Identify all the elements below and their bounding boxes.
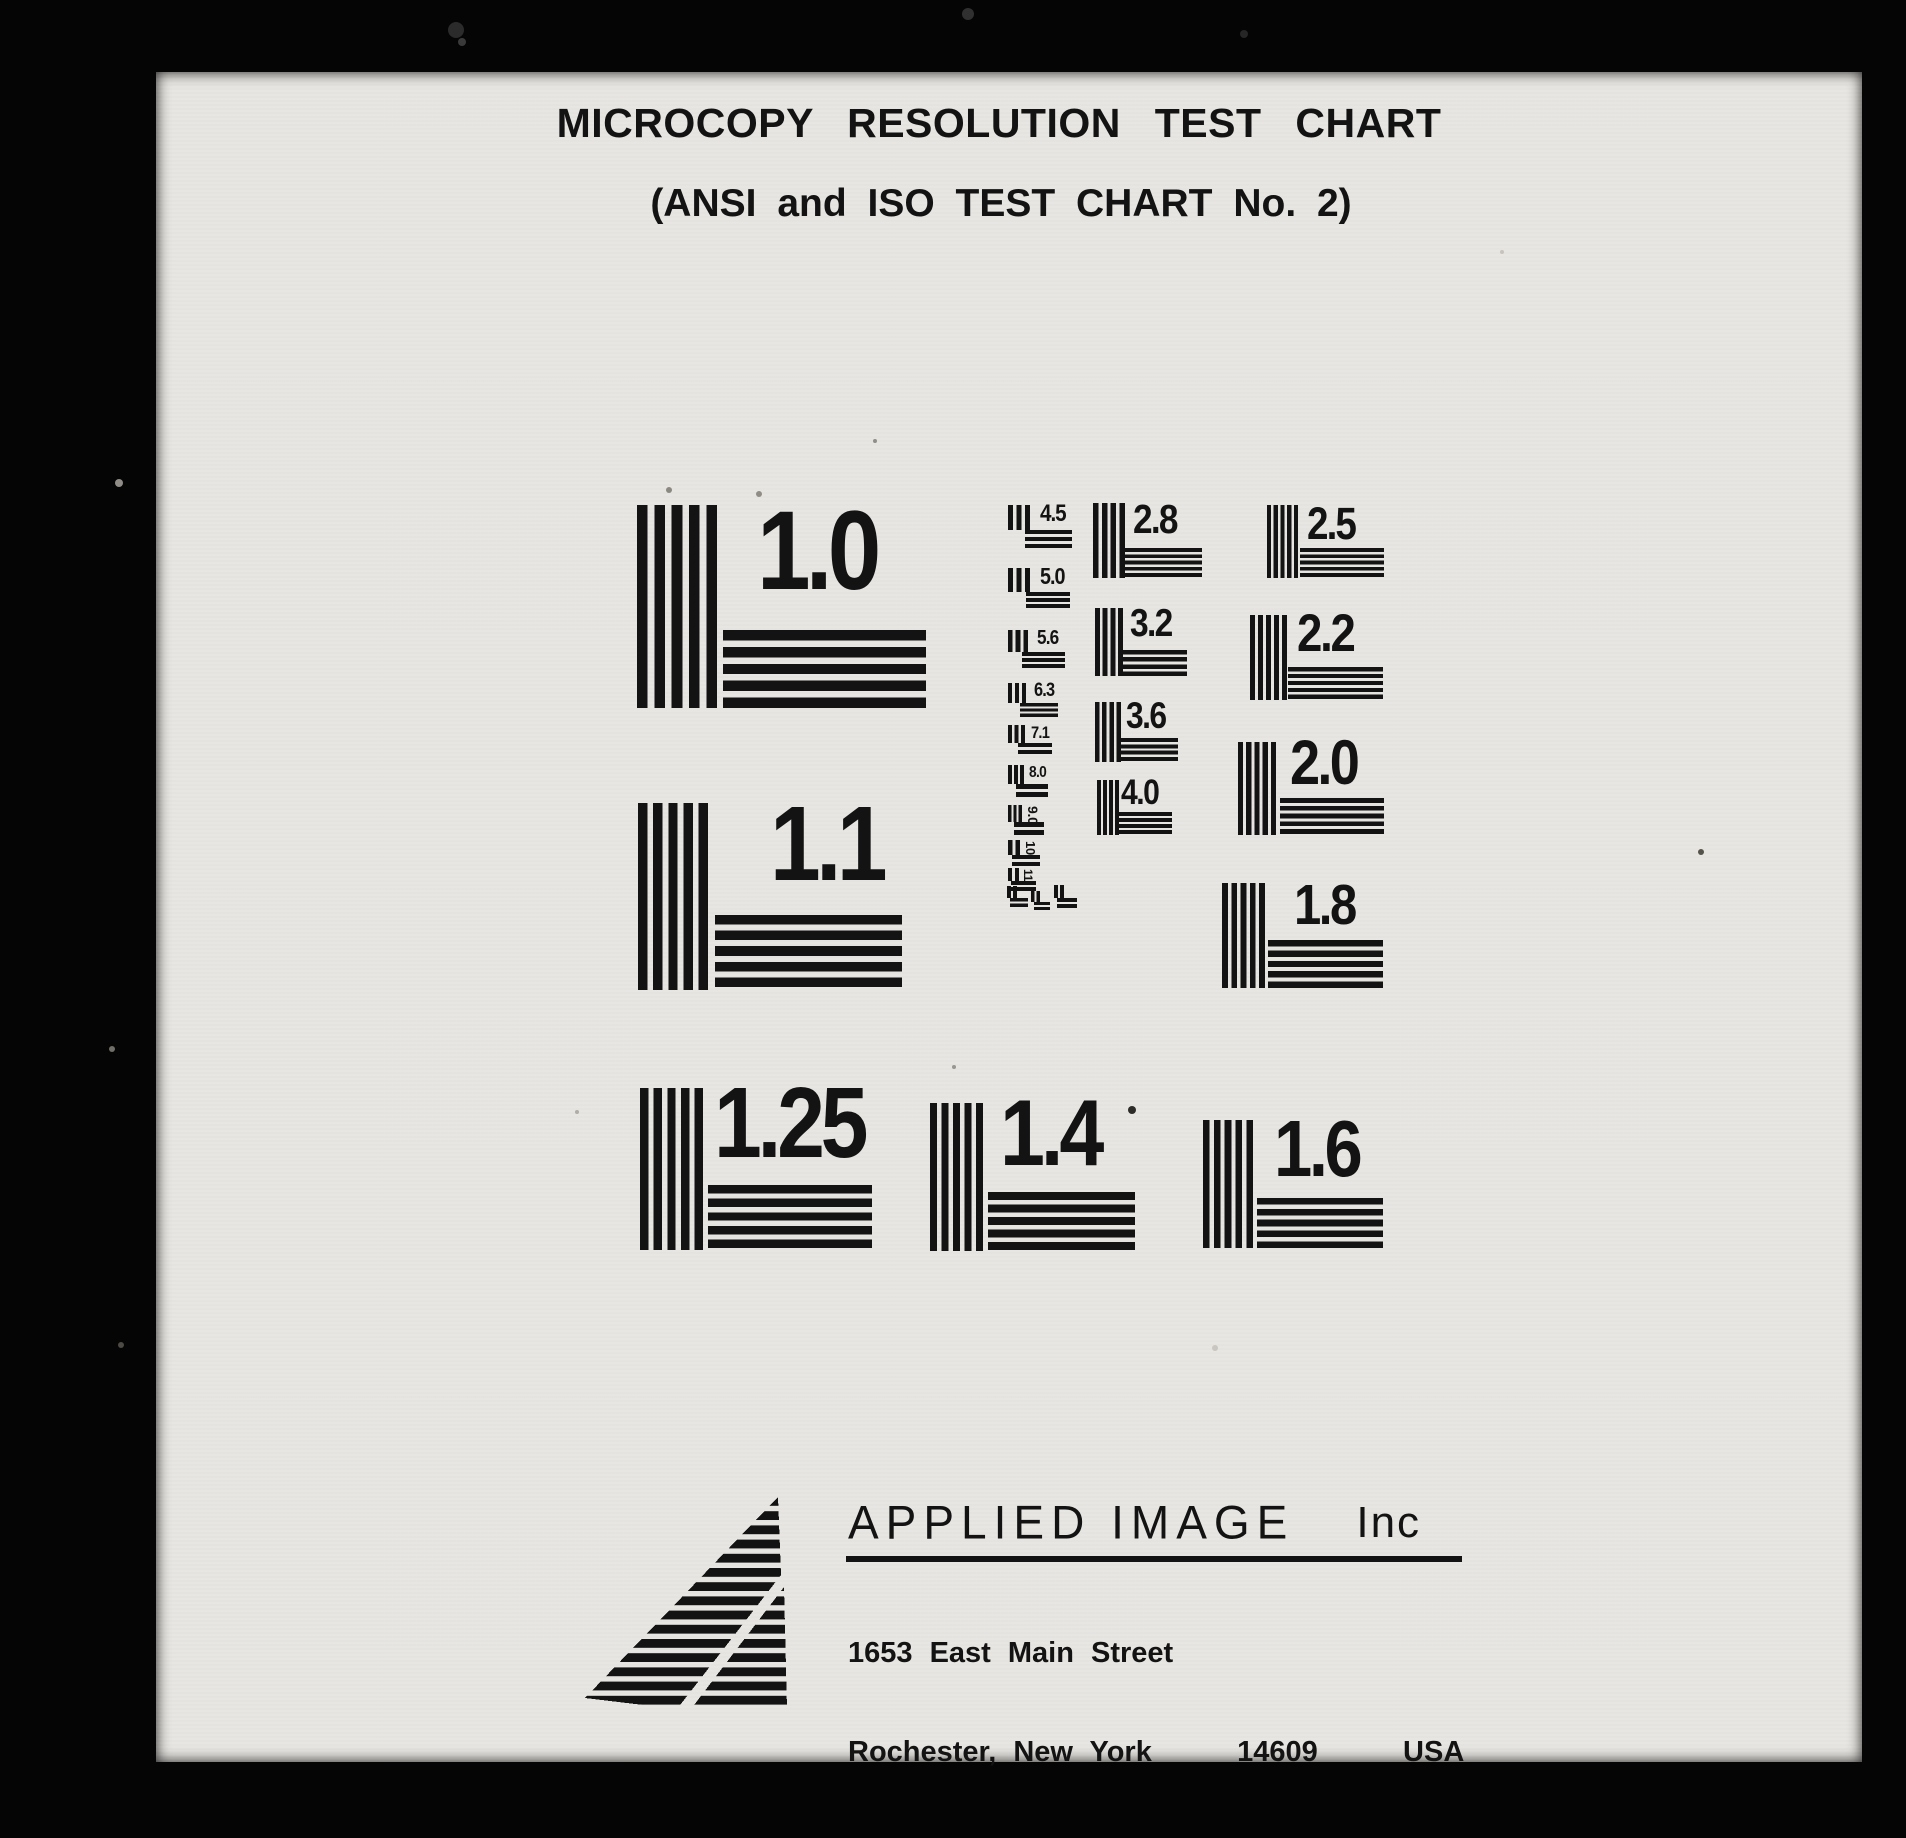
brand-row: APPLIED IMAGE Inc — [848, 1499, 1421, 1545]
address-street: 1653 East Main Street — [848, 1637, 1464, 1670]
dust-speck — [458, 38, 466, 46]
company-name: APPLIED IMAGE — [848, 1499, 1294, 1546]
dust-speck — [666, 487, 672, 493]
dust-speck — [952, 1065, 956, 1069]
dust-speck — [575, 1110, 579, 1114]
dust-speck — [448, 22, 464, 38]
address-block: 1653 East Main Street Rochester, New Yor… — [848, 1571, 1464, 1838]
dust-speck — [1698, 849, 1704, 855]
dust-speck — [873, 439, 877, 443]
dust-speck — [109, 1046, 115, 1052]
dust-speck — [1128, 1106, 1136, 1114]
dust-speck — [962, 8, 974, 20]
scanned-page: MICROCOPY RESOLUTION TEST CHART (ANSI an… — [0, 0, 1906, 1838]
dust-speck — [756, 491, 762, 497]
dust-speck — [115, 479, 123, 487]
address-city: Rochester, New York 14609 USA — [848, 1736, 1464, 1769]
dust-speck — [1212, 1345, 1218, 1351]
company-suffix: Inc — [1356, 1501, 1421, 1545]
dust-speck — [1240, 30, 1248, 38]
applied-image-logo-icon — [585, 1497, 787, 1709]
dust-speck — [118, 1342, 124, 1348]
dust-speck — [1500, 250, 1504, 254]
speckles-layer — [0, 0, 1906, 1838]
brand-underline — [846, 1556, 1462, 1562]
